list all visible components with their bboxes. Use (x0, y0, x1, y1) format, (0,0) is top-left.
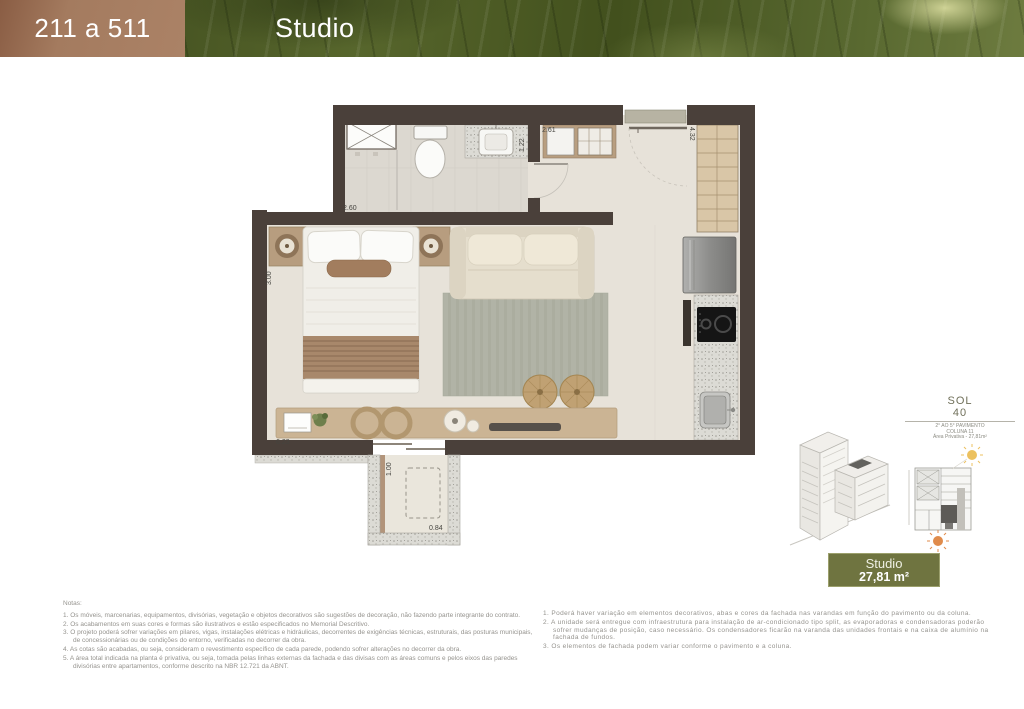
note-item: 4. As cotas são acabadas, ou seja, consi… (63, 646, 533, 654)
notes-left: Notas: 1. Os móveis, marcenarias, equipa… (63, 600, 533, 670)
dim-entry-width: 2.61 (542, 127, 556, 134)
page-title: Studio (275, 13, 355, 44)
brand-logo: SOL 40 (947, 395, 972, 419)
fridge (683, 237, 736, 293)
bed (303, 227, 419, 393)
note-item: 1. Os móveis, marcenarias, equipamentos,… (63, 612, 533, 620)
dim-balcony-width: 0.84 (429, 525, 443, 532)
notes-title: Notas: (63, 600, 533, 608)
cabinet (578, 128, 612, 155)
balcony (255, 455, 448, 533)
sliding-door (373, 444, 445, 449)
tray (489, 423, 561, 431)
area-badge-name: Studio (866, 557, 903, 570)
note-item: 2. Os acabamentos em suas cores e formas… (63, 621, 533, 629)
dim-bath-depth: 1.22 (519, 138, 526, 152)
dim-closet-height: 4.32 (688, 127, 695, 141)
page: 211 a 511 Studio (0, 0, 1024, 709)
highlighted-unit (941, 505, 957, 523)
dim-balcony-depth: 1.00 (386, 462, 393, 476)
cooktop (697, 307, 736, 342)
header-leaf-banner: 211 a 511 Studio (0, 0, 1024, 57)
floor-plan: 2.60 3.00 1.22 2.61 4.32 6.23 1.00 0.84 (240, 95, 770, 560)
sideboard (276, 408, 617, 438)
kitchen-sink (700, 392, 735, 428)
sun-afternoon-icon (927, 530, 949, 552)
sun-morning-icon (952, 444, 983, 469)
sofa (450, 227, 594, 299)
note-item: 1. Poderá haver variação em elementos de… (543, 610, 995, 618)
logo-bottom: 40 (953, 407, 967, 419)
pouf (560, 375, 594, 409)
area-badge-value: 27,81 m² (859, 571, 909, 584)
nightstand-left (269, 227, 306, 266)
pouf (523, 375, 557, 409)
corridor (957, 488, 965, 530)
logo-top: SOL (947, 395, 972, 407)
note-item: 2. A unidade será entregue com infraestr… (543, 619, 995, 642)
area-badge: Studio 27,81 m² (828, 553, 940, 587)
key-plan (909, 444, 983, 552)
caption-line: Área Privativa - 27,81m² (905, 435, 1015, 441)
unit-location-caption: 2° AO 5° PAVIMENTO COLUNA 11 Área Privat… (905, 421, 1015, 441)
toilet (414, 126, 447, 178)
unit-range-badge: 211 a 511 (0, 0, 185, 57)
notes-right: 1. Poderá haver variação em elementos de… (543, 609, 995, 651)
building-illustration (790, 432, 890, 545)
note-item: 3. O projeto poderá sofrer variações em … (63, 629, 533, 645)
dim-bed-depth: 3.00 (266, 271, 273, 285)
unit-range-label: 211 a 511 (34, 13, 150, 44)
tv (284, 413, 311, 432)
dim-bath-width: 2.60 (343, 205, 357, 212)
note-item: 5. A área total indicada na planta é pri… (63, 655, 533, 671)
dim-room-width: 6.23 (276, 439, 290, 446)
note-item: 3. Os elementos de fachada podem variar … (543, 643, 995, 651)
closet (697, 125, 738, 232)
